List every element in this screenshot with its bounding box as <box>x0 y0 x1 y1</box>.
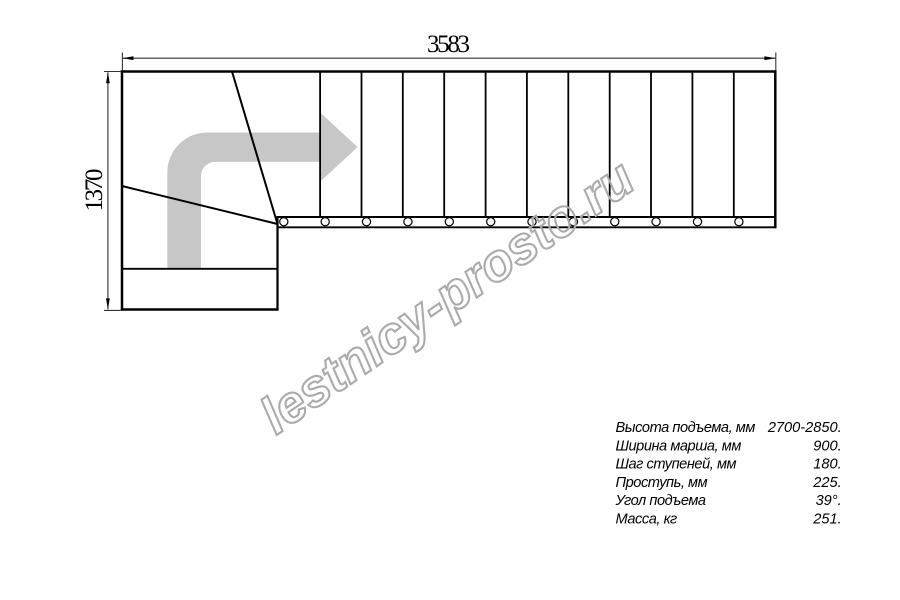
svg-text:225.: 225. <box>812 475 841 491</box>
svg-text:Угол подъема: Угол подъема <box>615 493 706 509</box>
svg-text:900.: 900. <box>813 438 841 454</box>
svg-text:Проступь, мм: Проступь, мм <box>616 475 708 491</box>
svg-text:180.: 180. <box>813 457 841 473</box>
svg-text:3583: 3583 <box>427 31 470 58</box>
svg-text:Шаг ступеней, мм: Шаг ступеней, мм <box>616 457 737 473</box>
svg-text:251.: 251. <box>812 512 841 528</box>
svg-text:39°.: 39°. <box>816 493 842 509</box>
svg-text:1370: 1370 <box>81 169 108 212</box>
svg-text:Ширина марша, мм: Ширина марша, мм <box>616 438 742 454</box>
svg-text:Высота подъема, мм: Высота подъема, мм <box>616 420 756 436</box>
svg-text:2700-2850.: 2700-2850. <box>767 420 842 436</box>
svg-text:Масса, кг: Масса, кг <box>616 512 678 528</box>
